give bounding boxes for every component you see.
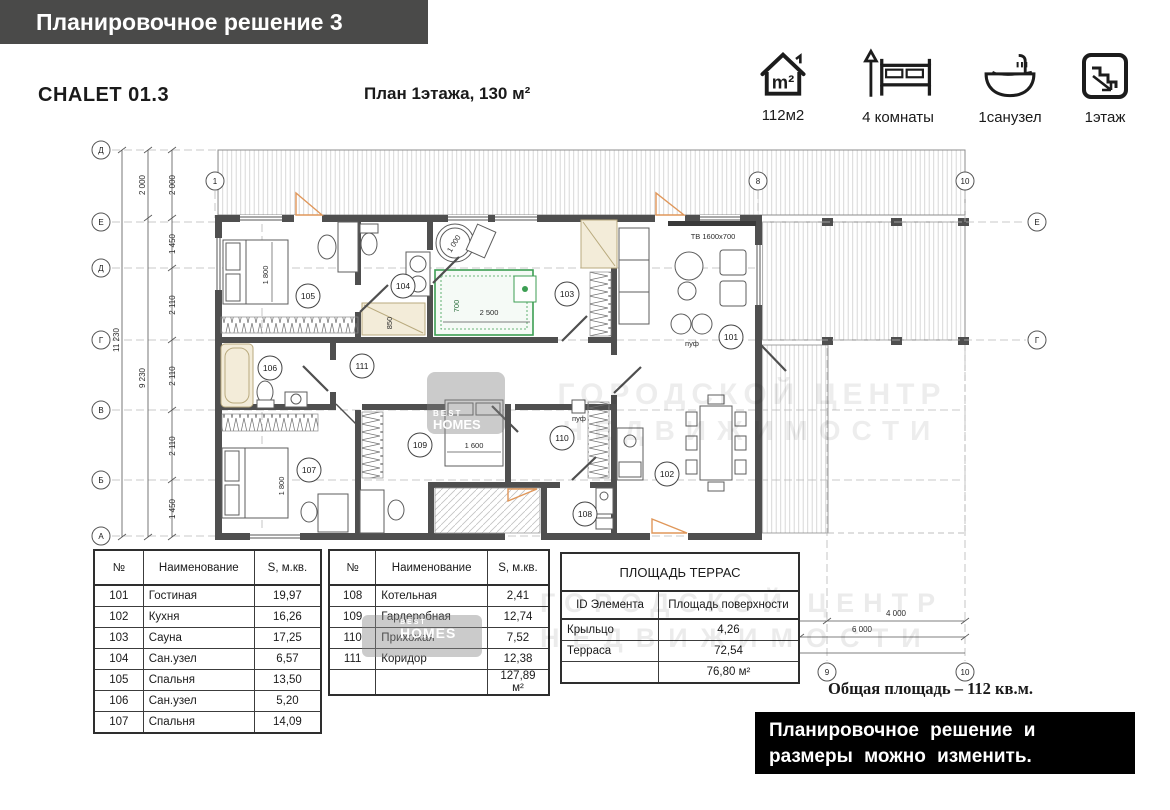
svg-text:102: 102 <box>660 469 674 479</box>
feature-floor-label: 1этаж <box>1072 109 1138 126</box>
puf-label: пуф <box>572 414 586 423</box>
svg-text:11 230: 11 230 <box>112 328 121 352</box>
svg-text:2 000: 2 000 <box>138 174 147 195</box>
stairs-icon <box>1081 52 1129 100</box>
dimension-ticks <box>118 147 176 540</box>
room-tag-103: 103 <box>555 282 579 306</box>
bath-icon <box>981 50 1039 100</box>
note-line-1: Планировочное решение и <box>769 718 1121 744</box>
svg-text:Д: Д <box>98 146 104 155</box>
living-101-furniture <box>619 221 756 334</box>
table-row: Терраса72,54 <box>561 641 799 662</box>
svg-text:А: А <box>98 532 104 541</box>
room-tag-104: 104 <box>391 274 415 298</box>
svg-text:В: В <box>98 406 103 415</box>
table-row: 105Спальня13,50 <box>94 670 321 691</box>
svg-text:10: 10 <box>961 177 970 186</box>
svg-text:HOMES: HOMES <box>433 417 481 432</box>
table-row: Крыльцо4,26 <box>561 619 799 641</box>
room-tag-107: 107 <box>297 458 321 482</box>
note-box: Планировочное решение и размеры можно из… <box>755 712 1135 774</box>
feature-rooms: 4 комнаты <box>843 48 953 126</box>
room-tag-105: 105 <box>296 284 320 308</box>
svg-text:1 450: 1 450 <box>168 498 177 519</box>
svg-text:1 800: 1 800 <box>277 477 286 496</box>
svg-text:Б: Б <box>98 476 103 485</box>
plan-title: План 1этажа, 130 м² <box>364 84 530 104</box>
rooms-table-1: № Наименование S, м.кв. 101Гостиная19,97… <box>93 549 322 734</box>
terrace-table: ПЛОЩАДЬ ТЕРРАС ID Элемента Площадь повер… <box>560 552 800 684</box>
table-row: 107Спальня14,09 <box>94 712 321 734</box>
svg-text:700: 700 <box>452 300 461 313</box>
axis-right: Е Г <box>1028 213 1046 349</box>
svg-text:2 500: 2 500 <box>480 308 499 317</box>
svg-text:2 110: 2 110 <box>168 366 177 386</box>
svg-text:1 600: 1 600 <box>465 441 484 450</box>
feature-area: m² 112м2 <box>748 46 818 124</box>
svg-text:ГОРОДСКОЙ ЦЕНТР: ГОРОДСКОЙ ЦЕНТР <box>557 377 946 411</box>
svg-text:1 800: 1 800 <box>261 266 270 285</box>
table-total-row: 127,89 м² <box>329 670 549 696</box>
svg-text:6 000: 6 000 <box>852 625 873 634</box>
floor-plan-page: Планировочное решение 3 CHALET 01.3 План… <box>0 0 1170 810</box>
svg-text:9: 9 <box>825 668 830 677</box>
room-tag-109: 109 <box>408 433 432 457</box>
room-tag-106: 106 <box>258 356 282 380</box>
model-title: CHALET 01.3 <box>38 84 169 107</box>
room-tag-108: 108 <box>573 502 597 526</box>
rooms-table-2: № Наименование S, м.кв. 108Котельная2,41… <box>328 549 550 696</box>
feature-rooms-label: 4 комнаты <box>843 109 953 126</box>
table-row: 108Котельная2,41 <box>329 585 549 607</box>
axis-left: Д Е Д Г В Б А <box>92 141 110 545</box>
table-row: 110Прихожая7,52 <box>329 628 549 649</box>
tv-label: ТВ 1600х700 <box>691 232 736 241</box>
svg-text:Д: Д <box>98 264 104 273</box>
watermark-plan: ГОРОДСКОЙ ЦЕНТР НЕДВИЖИМОСТИ BEST HOMES <box>427 372 947 446</box>
feature-area-label: 112м2 <box>748 107 818 124</box>
svg-text:108: 108 <box>578 509 592 519</box>
svg-text:8: 8 <box>756 177 761 186</box>
svg-text:110: 110 <box>555 433 569 443</box>
terrace-table-title: ПЛОЩАДЬ ТЕРРАС <box>561 553 799 591</box>
svg-text:4 000: 4 000 <box>886 609 907 618</box>
room-tag-111: 111 <box>350 354 374 378</box>
svg-text:2 110: 2 110 <box>168 436 177 456</box>
table-row: 106Сан.узел5,20 <box>94 691 321 712</box>
svg-text:1 450: 1 450 <box>168 233 177 254</box>
table-row: 101Гостиная19,97 <box>94 585 321 607</box>
svg-text:2 000: 2 000 <box>168 174 177 195</box>
svg-text:Г: Г <box>99 336 104 345</box>
svg-text:m²: m² <box>772 71 795 92</box>
puf-label: пуф <box>685 339 699 348</box>
svg-text:Г: Г <box>1035 336 1040 345</box>
svg-text:850: 850 <box>385 317 394 330</box>
feature-bath: 1санузел <box>965 50 1055 126</box>
total-area-127: 127,89 м² <box>487 670 549 696</box>
svg-text:109: 109 <box>413 440 427 450</box>
svg-text:104: 104 <box>396 281 410 291</box>
house-area-icon: m² <box>757 46 809 98</box>
bed-icon <box>855 48 941 100</box>
svg-text:111: 111 <box>356 361 369 371</box>
svg-text:103: 103 <box>560 289 574 299</box>
svg-text:101: 101 <box>724 332 738 342</box>
page-banner: Планировочное решение 3 <box>0 0 428 44</box>
room-tag-101: 101 <box>719 325 743 349</box>
svg-text:Е: Е <box>98 218 103 227</box>
table-row: 103Сауна17,25 <box>94 628 321 649</box>
svg-text:107: 107 <box>302 465 316 475</box>
svg-text:9 230: 9 230 <box>138 367 147 388</box>
svg-text:1: 1 <box>213 177 218 186</box>
svg-text:НЕДВИЖИМОСТИ: НЕДВИЖИМОСТИ <box>563 415 941 446</box>
table-row: 102Кухня16,26 <box>94 607 321 628</box>
svg-text:105: 105 <box>301 291 315 301</box>
table-row: 109Гардеробная12,74 <box>329 607 549 628</box>
terrace-total: 76,80 м² <box>659 662 800 684</box>
feature-bath-label: 1санузел <box>965 109 1055 126</box>
boiler-108-equipment <box>596 488 613 529</box>
svg-text:Е: Е <box>1034 218 1039 227</box>
table-row: 111Коридор12,38 <box>329 649 549 670</box>
table-total-row: 76,80 м² <box>561 662 799 684</box>
total-area-label: Общая площадь – 112 кв.м. <box>828 679 1033 699</box>
bedroom-105-furniture <box>223 222 358 304</box>
room-tag-110: 110 <box>550 426 574 450</box>
feature-floor: 1этаж <box>1072 52 1138 126</box>
table-row: 104Сан.узел6,57 <box>94 649 321 670</box>
svg-text:2 110: 2 110 <box>168 295 177 315</box>
note-line-2: размеры можно изменить. <box>769 744 1121 770</box>
room-tag-102: 102 <box>655 462 679 486</box>
svg-text:106: 106 <box>263 363 277 373</box>
svg-text:10: 10 <box>961 668 970 677</box>
